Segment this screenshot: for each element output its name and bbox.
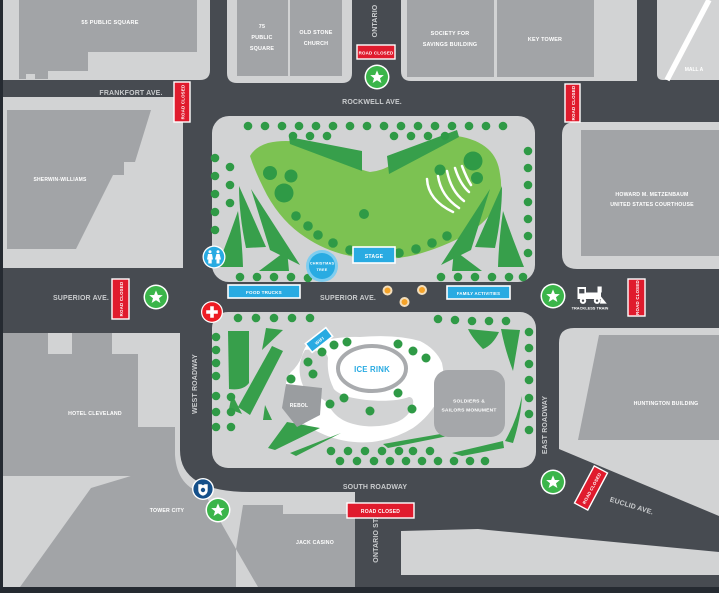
svg-text:TREE: TREE bbox=[317, 268, 328, 272]
svg-text:HOWARD M. METZENBAUM: HOWARD M. METZENBAUM bbox=[615, 192, 688, 198]
svg-text:55 PUBLIC SQUARE: 55 PUBLIC SQUARE bbox=[81, 20, 138, 26]
svg-text:SOCIETY FOR: SOCIETY FOR bbox=[431, 31, 470, 37]
svg-text:SOLDIERS &: SOLDIERS & bbox=[453, 399, 485, 405]
svg-text:ROAD CLOSED: ROAD CLOSED bbox=[635, 280, 640, 315]
svg-text:JACK CASINO: JACK CASINO bbox=[296, 540, 334, 546]
svg-text:FOOD TRUCKS: FOOD TRUCKS bbox=[246, 290, 282, 295]
svg-text:ROAD CLOSED: ROAD CLOSED bbox=[571, 86, 576, 121]
svg-text:KEY TOWER: KEY TOWER bbox=[528, 37, 562, 43]
svg-text:FRANKFORT AVE.: FRANKFORT AVE. bbox=[99, 90, 162, 97]
svg-text:OLD STONE: OLD STONE bbox=[299, 30, 332, 36]
svg-text:REBOL: REBOL bbox=[290, 403, 309, 409]
svg-text:ROAD CLOSED: ROAD CLOSED bbox=[181, 85, 186, 120]
svg-text:SAVINGS BUILDING: SAVINGS BUILDING bbox=[423, 42, 478, 48]
svg-text:SUPERIOR AVE.: SUPERIOR AVE. bbox=[320, 295, 376, 302]
svg-text:UNITED STATES COURTHOUSE: UNITED STATES COURTHOUSE bbox=[610, 202, 694, 208]
svg-text:SQUARE: SQUARE bbox=[250, 46, 274, 52]
svg-text:MALL A: MALL A bbox=[685, 67, 704, 73]
svg-text:ROAD CLOSED: ROAD CLOSED bbox=[359, 51, 394, 56]
svg-text:TRACKLESS TRAIN: TRACKLESS TRAIN bbox=[572, 306, 609, 311]
svg-text:SHERWIN-WILLIAMS: SHERWIN-WILLIAMS bbox=[33, 177, 87, 183]
svg-text:SUPERIOR AVE.: SUPERIOR AVE. bbox=[53, 295, 109, 302]
svg-text:ONTARIO ST.: ONTARIO ST. bbox=[373, 517, 380, 562]
svg-text:ROAD CLOSED: ROAD CLOSED bbox=[361, 509, 400, 515]
svg-text:EAST ROADWAY: EAST ROADWAY bbox=[542, 396, 549, 455]
svg-text:75: 75 bbox=[259, 24, 265, 30]
svg-text:PUBLIC: PUBLIC bbox=[251, 35, 272, 41]
svg-text:HUNTINGTON BUILDING: HUNTINGTON BUILDING bbox=[634, 401, 699, 407]
svg-text:CHRISTMAS: CHRISTMAS bbox=[310, 262, 335, 266]
svg-text:CHURCH: CHURCH bbox=[304, 41, 329, 47]
svg-text:TOWER CITY: TOWER CITY bbox=[150, 508, 185, 514]
svg-text:FAMILY ACTIVITIES: FAMILY ACTIVITIES bbox=[457, 291, 500, 296]
svg-text:HOTEL CLEVELAND: HOTEL CLEVELAND bbox=[68, 411, 122, 417]
svg-text:SOUTH ROADWAY: SOUTH ROADWAY bbox=[343, 484, 407, 491]
svg-text:ICE RINK: ICE RINK bbox=[354, 365, 390, 374]
svg-text:ROCKWELL AVE.: ROCKWELL AVE. bbox=[342, 99, 402, 106]
svg-text:ROAD CLOSED: ROAD CLOSED bbox=[119, 282, 124, 317]
svg-text:SAILORS MONUMENT: SAILORS MONUMENT bbox=[441, 408, 496, 414]
svg-text:WEST ROADWAY: WEST ROADWAY bbox=[192, 354, 199, 414]
svg-text:ONTARIO: ONTARIO bbox=[372, 4, 379, 37]
svg-text:STAGE: STAGE bbox=[365, 254, 384, 260]
